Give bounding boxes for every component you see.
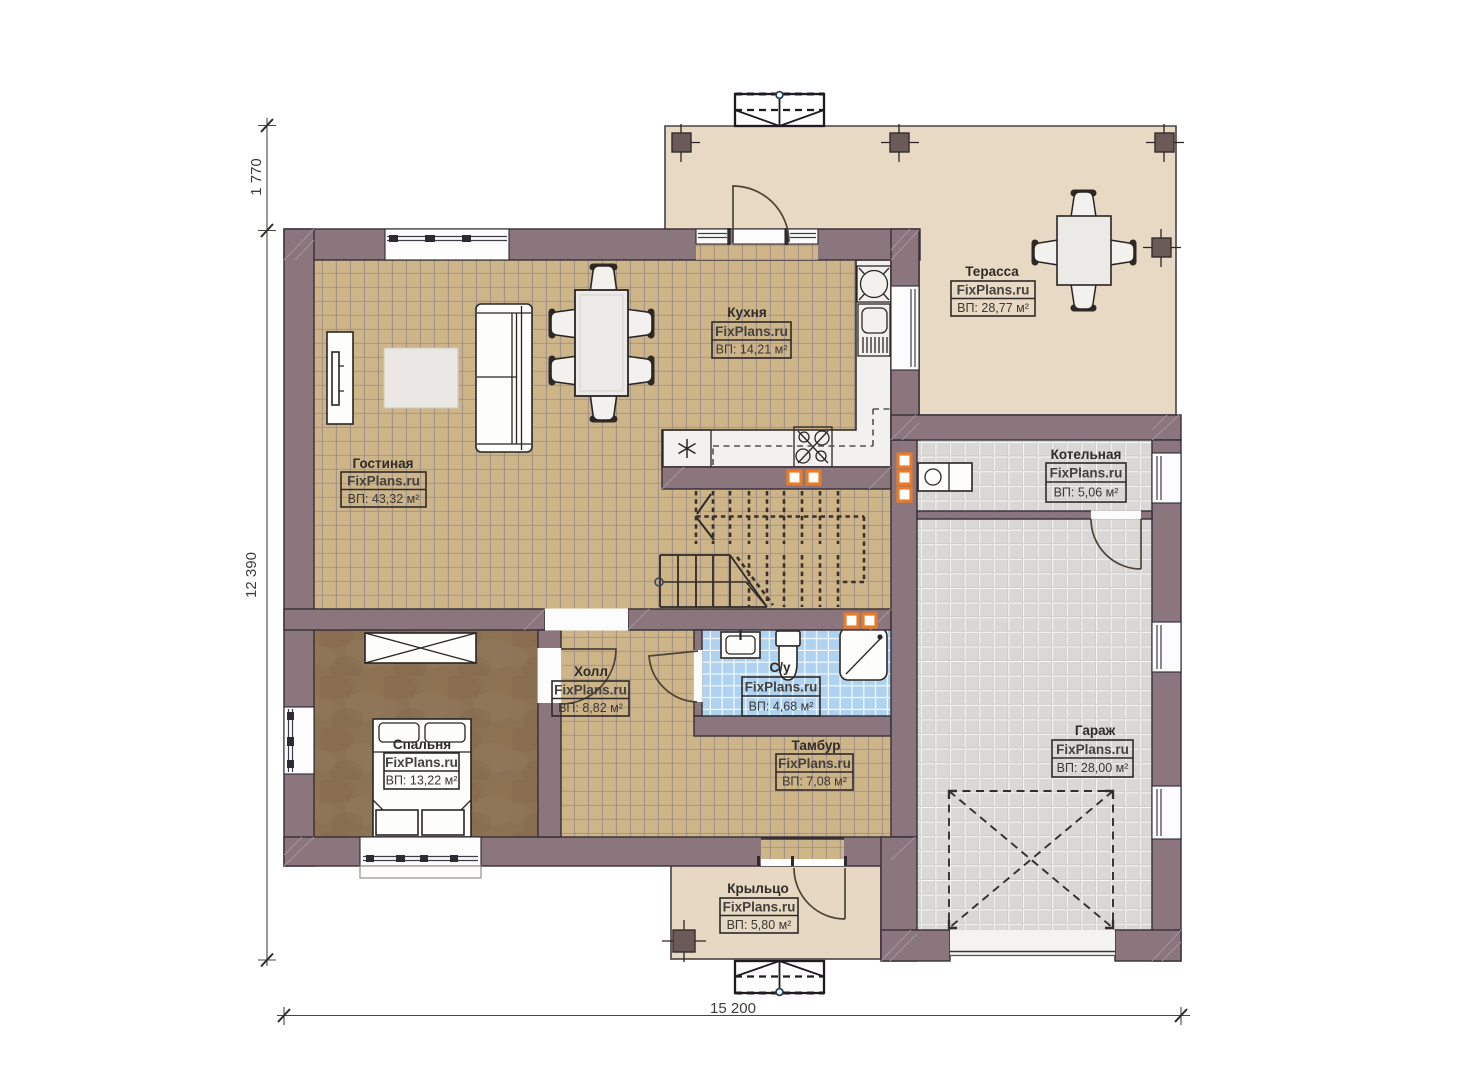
svg-text:Кухня: Кухня [727,305,766,320]
svg-text:FixPlans.ru: FixPlans.ru [715,324,788,339]
svg-text:ВП: 5,06 м²: ВП: 5,06 м² [1054,486,1119,500]
svg-text:FixPlans.ru: FixPlans.ru [723,900,796,915]
svg-text:С/у: С/у [769,660,791,675]
svg-text:FixPlans.ru: FixPlans.ru [554,683,627,698]
svg-text:Крыльцо: Крыльцо [727,881,788,896]
svg-text:Тамбур: Тамбур [792,738,841,753]
svg-text:FixPlans.ru: FixPlans.ru [778,756,851,771]
svg-text:ВП: 13,22 м²: ВП: 13,22 м² [386,774,458,788]
svg-text:ВП: 14,21 м²: ВП: 14,21 м² [716,343,788,357]
svg-text:ВП: 28,00 м²: ВП: 28,00 м² [1057,761,1129,775]
svg-text:FixPlans.ru: FixPlans.ru [1056,742,1129,757]
svg-text:FixPlans.ru: FixPlans.ru [745,680,818,695]
svg-text:15 200: 15 200 [710,1000,756,1017]
svg-text:FixPlans.ru: FixPlans.ru [957,283,1030,298]
svg-text:Котельная: Котельная [1051,447,1122,462]
svg-text:ВП: 4,68 м²: ВП: 4,68 м² [749,700,814,714]
svg-text:Спальня: Спальня [393,737,451,752]
svg-text:ВП: 28,77 м²: ВП: 28,77 м² [957,301,1029,315]
svg-text:Гостиная: Гостиная [352,456,413,471]
svg-text:Гараж: Гараж [1075,723,1116,738]
svg-text:Терасса: Терасса [965,264,1019,279]
svg-text:FixPlans.ru: FixPlans.ru [347,474,420,489]
svg-text:12 390: 12 390 [243,552,260,598]
svg-text:1 770: 1 770 [248,158,265,196]
svg-text:ВП: 43,32 м²: ВП: 43,32 м² [348,492,420,506]
svg-text:ВП: 8,82 м²: ВП: 8,82 м² [558,701,623,715]
svg-text:Холл: Холл [574,664,608,679]
svg-text:FixPlans.ru: FixPlans.ru [385,755,458,770]
svg-text:ВП: 5,80 м²: ВП: 5,80 м² [727,918,792,932]
svg-text:FixPlans.ru: FixPlans.ru [1050,466,1123,481]
svg-text:ВП: 7,08 м²: ВП: 7,08 м² [782,775,847,789]
